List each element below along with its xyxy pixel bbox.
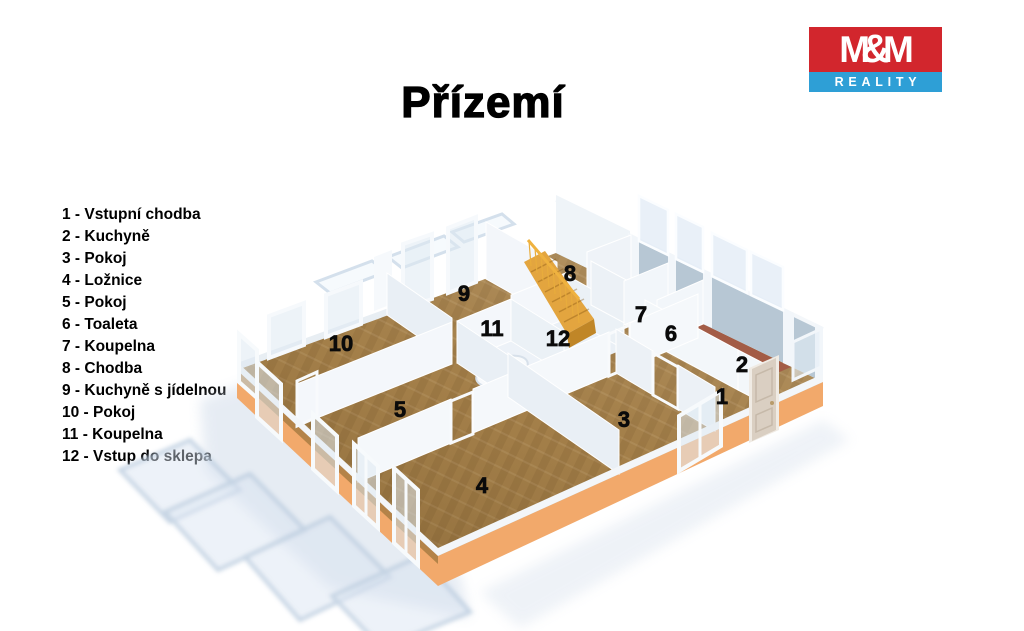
room-label-7: 7 xyxy=(635,302,647,327)
room-label-6: 6 xyxy=(665,321,677,346)
room-label-10: 10 xyxy=(329,331,353,356)
room-label-11: 11 xyxy=(480,316,503,341)
floorplan-page: { "title": "Přízemí", "logo": { "top_tex… xyxy=(0,0,1024,631)
logo-ampersand: & xyxy=(861,27,890,72)
room-label-3: 3 xyxy=(618,407,630,432)
room-label-12: 12 xyxy=(546,326,570,351)
room-label-8: 8 xyxy=(564,261,576,286)
room-label-1: 1 xyxy=(716,384,728,409)
floorplan-rendering: 1 2 3 4 5 6 7 8 9 10 11 12 xyxy=(0,0,1024,631)
room-label-5: 5 xyxy=(394,397,406,422)
wall-pier xyxy=(703,269,712,328)
room-label-4: 4 xyxy=(476,473,489,498)
room-label-2: 2 xyxy=(736,352,748,377)
room-label-9: 9 xyxy=(458,281,470,306)
door-knob xyxy=(770,401,774,405)
entry-door xyxy=(749,355,779,443)
